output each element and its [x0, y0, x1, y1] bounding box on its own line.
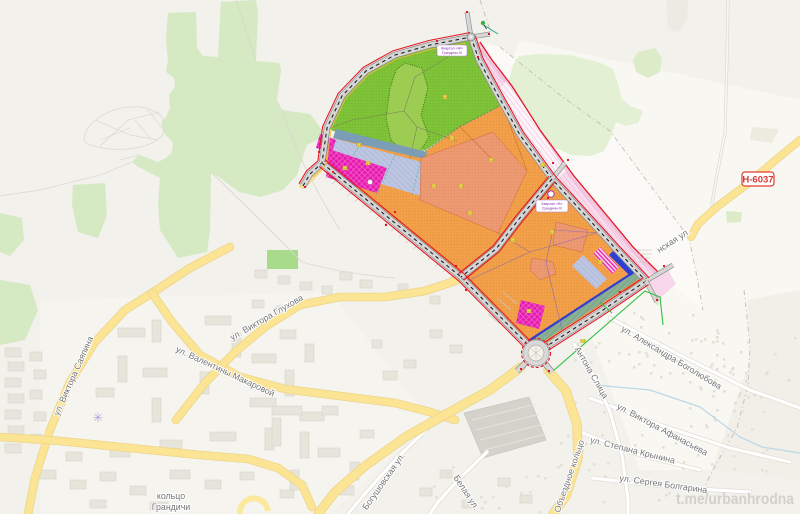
svg-text:1.1: 1.1 — [468, 211, 472, 215]
svg-text:1.1: 1.1 — [443, 95, 447, 99]
svg-text:1.1: 1.1 — [511, 238, 515, 242]
svg-text:1.1: 1.1 — [489, 158, 493, 162]
svg-text:1.1: 1.1 — [459, 184, 463, 188]
svg-text:Квартал «Ж»: Квартал «Ж» — [441, 47, 463, 51]
svg-text:Квартал «В»: Квартал «В» — [542, 202, 563, 206]
svg-text:кольцо: кольцо — [157, 491, 185, 501]
svg-text:1.1: 1.1 — [366, 161, 370, 165]
svg-text:1.1: 1.1 — [343, 166, 347, 170]
svg-text:Н-6037: Н-6037 — [742, 175, 773, 186]
svg-text:Грандичи-IV: Грандичи-IV — [542, 207, 563, 211]
svg-text:1.1: 1.1 — [598, 260, 602, 264]
svg-text:1.1: 1.1 — [550, 230, 554, 234]
svg-text:1.1: 1.1 — [541, 163, 545, 167]
svg-text:Грандичи: Грандичи — [152, 502, 191, 512]
svg-text:1.1: 1.1 — [432, 184, 436, 188]
svg-text:1.1: 1.1 — [527, 309, 531, 313]
svg-text:1.1: 1.1 — [357, 143, 361, 147]
svg-text:✳: ✳ — [93, 410, 104, 425]
svg-text:Грандичи-IV: Грандичи-IV — [442, 51, 463, 55]
svg-text:1.1: 1.1 — [450, 136, 454, 140]
svg-text:1.1: 1.1 — [581, 339, 585, 343]
svg-text:t.me/urbanhrodna: t.me/urbanhrodna — [676, 491, 794, 508]
